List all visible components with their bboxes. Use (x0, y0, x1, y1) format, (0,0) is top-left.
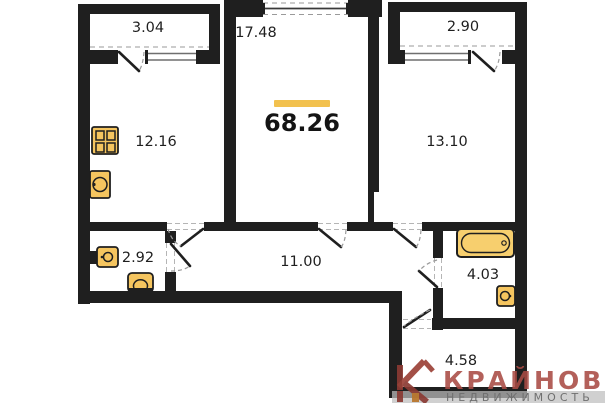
room-area-label-balcony-left: 3.04 (132, 20, 164, 36)
total-area-value: 68.26 (264, 109, 340, 137)
stove-icon (92, 127, 118, 154)
floor-plan: 3.04 17.48 2.90 12.16 13.10 2.92 11.00 4… (0, 0, 605, 403)
wall-segment (515, 2, 527, 398)
wall-segment (78, 4, 90, 304)
room-area-label-bathroom: 4.03 (467, 267, 499, 283)
total-area-accent-bar (274, 100, 330, 107)
door-leaf (119, 52, 139, 71)
window-tick (468, 50, 471, 64)
wall-segment (347, 222, 393, 231)
wall-segment (433, 231, 443, 258)
wall-segment (204, 222, 318, 231)
wall-segment (165, 272, 176, 291)
door-leaf (394, 229, 416, 247)
wall-segment (90, 222, 167, 231)
wall-segment (165, 231, 176, 243)
wall-segment (224, 0, 236, 223)
room-area-label-wc: 2.92 (122, 250, 154, 266)
wall-segment (209, 4, 220, 64)
door-leaf (319, 229, 341, 247)
brand-logo-subtitle: НЕДВИЖИМОСТЬ (446, 391, 594, 403)
door-leaf (171, 244, 190, 266)
room-area-label-kitchen: 12.16 (135, 134, 177, 150)
window-tick (261, 3, 265, 14)
window-tick (402, 50, 405, 64)
wall-segment (90, 50, 118, 64)
kitchen-sink-icon (90, 171, 110, 198)
brand-logo: КРАЙНОВ НЕДВИЖИМОСТЬ (392, 361, 605, 403)
bath-sink-icon (497, 286, 515, 306)
window-tick (346, 3, 350, 14)
window-tick (196, 50, 199, 64)
toilet-icon (128, 273, 153, 294)
room-area-label-bedroom: 13.10 (426, 134, 468, 150)
door-arc (416, 230, 421, 247)
wall-segment (443, 318, 515, 329)
window-tick (145, 50, 148, 64)
wall-segment (368, 0, 379, 223)
room-area-label-balcony-right: 2.90 (447, 19, 479, 35)
door-arc (171, 266, 190, 271)
door-leaf (473, 52, 494, 71)
floor-plan-drawing: 3.04 17.48 2.90 12.16 13.10 2.92 11.00 4… (0, 0, 605, 403)
wall-segment (388, 2, 527, 12)
room-area-label-hallway: 11.00 (280, 254, 322, 270)
room-area-label-living-room: 17.48 (235, 25, 277, 41)
wall-segment (78, 291, 402, 303)
door-leaf (404, 310, 430, 327)
wall-notch (374, 192, 379, 223)
fixtures (90, 127, 515, 306)
wall-segment (78, 4, 220, 14)
door-arc (139, 52, 144, 71)
wall-segment (432, 318, 443, 330)
total-area: 68.26 (264, 100, 340, 137)
wc-sink-icon (90, 247, 118, 267)
doors (119, 52, 500, 329)
wall-segment (502, 50, 515, 64)
door-arc (494, 52, 500, 71)
door-arc (341, 230, 346, 247)
door-leaf (181, 229, 203, 246)
bathtub-icon (457, 229, 514, 257)
